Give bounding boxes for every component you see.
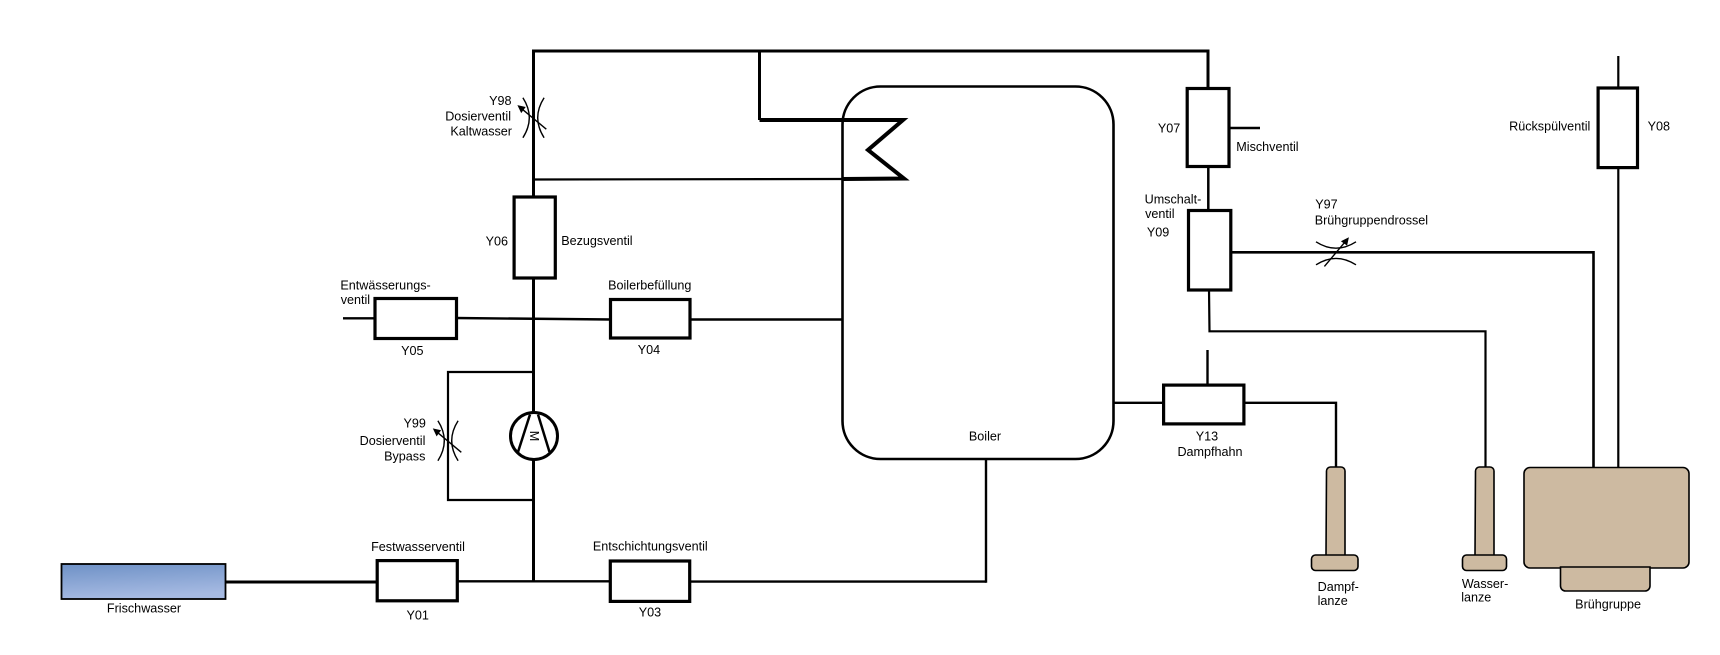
svg-text:Dampfhahn: Dampfhahn — [1177, 445, 1242, 459]
svg-text:Frischwasser: Frischwasser — [107, 601, 181, 615]
svg-text:Kaltwasser: Kaltwasser — [450, 125, 512, 139]
svg-text:Dosierventil: Dosierventil — [445, 109, 511, 123]
svg-text:lanze: lanze — [1318, 594, 1348, 608]
svg-text:Rückspülventil: Rückspülventil — [1509, 120, 1590, 134]
svg-text:Festwasserventil: Festwasserventil — [371, 540, 465, 554]
svg-text:Y05: Y05 — [401, 344, 423, 358]
svg-text:Y97: Y97 — [1315, 197, 1337, 211]
svg-text:Boiler: Boiler — [969, 430, 1001, 444]
svg-text:Y98: Y98 — [489, 94, 511, 108]
svg-text:Bypass: Bypass — [384, 449, 425, 463]
svg-text:Y08: Y08 — [1648, 120, 1670, 134]
svg-text:Dampf-: Dampf- — [1318, 580, 1359, 594]
svg-text:M: M — [527, 431, 541, 442]
svg-text:Umschalt-: Umschalt- — [1145, 192, 1202, 206]
svg-text:ventil: ventil — [341, 293, 370, 307]
svg-text:ventil: ventil — [1145, 207, 1174, 221]
svg-text:Boilerbefüllung: Boilerbefüllung — [608, 279, 691, 293]
svg-text:Y09: Y09 — [1147, 225, 1169, 239]
svg-text:Mischventil: Mischventil — [1236, 140, 1298, 154]
svg-text:Y99: Y99 — [403, 417, 425, 431]
svg-text:Y07: Y07 — [1158, 122, 1180, 136]
svg-text:Y01: Y01 — [406, 609, 428, 623]
svg-text:Y04: Y04 — [638, 343, 660, 357]
svg-text:Y13: Y13 — [1196, 430, 1218, 444]
svg-text:Entschichtungsventil: Entschichtungsventil — [593, 540, 708, 554]
svg-text:Dosierventil: Dosierventil — [360, 434, 426, 448]
svg-text:Entwässerungs-: Entwässerungs- — [340, 279, 430, 293]
svg-text:lanze: lanze — [1461, 590, 1491, 604]
svg-text:Bezugsventil: Bezugsventil — [561, 234, 632, 248]
svg-text:Brühgruppendrossel: Brühgruppendrossel — [1315, 213, 1428, 227]
svg-text:Y03: Y03 — [639, 606, 661, 620]
svg-text:Brühgruppe: Brühgruppe — [1575, 598, 1641, 612]
svg-text:Y06: Y06 — [486, 234, 508, 248]
svg-text:Wasser-: Wasser- — [1462, 577, 1508, 591]
